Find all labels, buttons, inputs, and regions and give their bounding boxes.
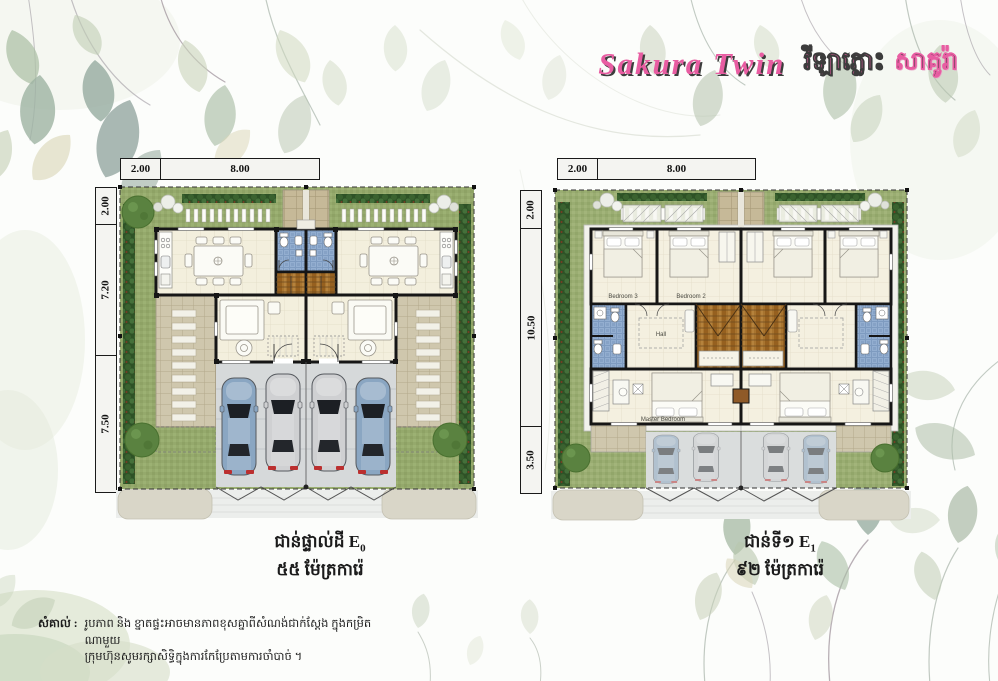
road-corner-stone: [819, 490, 909, 520]
hall-label: Hall: [656, 332, 666, 338]
entry-step: [297, 220, 315, 229]
dimension-cell: 2.00: [558, 159, 598, 179]
tree: [122, 196, 154, 228]
dimension-cell: 2.00: [121, 159, 161, 179]
road-corner-stone: [382, 489, 476, 519]
note-text: រូបភាព និង ខ្នាតផ្ទះអាចមានភាពខុសគ្នាពីសំ…: [85, 616, 385, 666]
first-floor-plan: Bedroom 3 Bedroom 2 Hall Master Bedroom: [551, 184, 911, 522]
first-side-dimension-bar: 2.00 10.50 3.50: [520, 190, 542, 494]
dimension-cell: 8.00: [161, 159, 319, 179]
ground-floor-caption: ជាន់ផ្ទាល់ដី E0 ៥៥ ម៉ែត្រការ៉េ: [205, 529, 435, 582]
master-bedroom-label: Master Bedroom: [641, 417, 685, 423]
brand-khmer-dark: សាគូរ៉ា: [895, 46, 958, 82]
dimension-cell: 7.50: [96, 356, 116, 492]
first-floor-caption: ជាន់ទី១ E1 ៩២ ម៉ែត្រការ៉េ: [665, 529, 895, 582]
note-line2: ក្រុមហ៊ុនសូមរក្សាសិទ្ធិក្នុងការកែប្រែតាម…: [85, 651, 303, 663]
ground-floor-area: ៥៥ ម៉ែត្រការ៉េ: [205, 557, 435, 583]
tree: [433, 423, 467, 457]
tree: [125, 423, 159, 457]
disclaimer-note: សំគាល់ : រូបភាព និង ខ្នាតផ្ទះអាចមានភាពខុ…: [38, 616, 385, 666]
brochure-page: Sakura Twin វីឡាភ្លោះ សាគូរ៉ា 2.00 8.00 …: [0, 0, 998, 681]
center-walkway: [738, 192, 744, 227]
note-label: សំគាល់ :: [38, 616, 78, 666]
tree: [562, 444, 590, 472]
ground-floor-title: ជាន់ផ្ទាល់ដី E0: [205, 529, 435, 557]
dimension-cell: 10.50: [521, 229, 541, 427]
dimension-cell: 3.50: [521, 427, 541, 493]
tree: [871, 444, 899, 472]
ground-floor-plan: [116, 184, 478, 522]
road-corner-stone: [553, 490, 643, 520]
dimension-cell: 8.00: [598, 159, 755, 179]
dimension-cell: 7.20: [96, 225, 116, 356]
note-line1: រូបភាព និង ខ្នាតផ្ទះអាចមានភាពខុសគ្នាពីសំ…: [85, 618, 372, 647]
dimension-cell: 2.00: [521, 191, 541, 229]
road-corner-stone: [118, 489, 212, 519]
brand-khmer-text: វីឡាភ្លោះ សាគូរ៉ា: [803, 46, 958, 82]
first-top-dimension-bar: 2.00 8.00: [557, 158, 756, 180]
first-floor-area: ៩២ ម៉ែត្រការ៉េ: [665, 557, 895, 583]
brand-logo: Sakura Twin វីឡាភ្លោះ សាគូរ៉ា: [598, 46, 958, 82]
brand-khmer-pink: វីឡាភ្លោះ: [803, 46, 884, 82]
dimension-cell: 2.00: [96, 188, 116, 225]
bedroom2-label: Bedroom 2: [676, 294, 706, 300]
leaves-bottom-center: [406, 592, 541, 668]
stair-gap: [733, 389, 749, 403]
bedroom3-label: Bedroom 3: [608, 294, 638, 300]
brand-script-text: Sakura Twin: [598, 46, 785, 82]
ground-top-dimension-bar: 2.00 8.00: [120, 158, 320, 180]
ground-side-dimension-bar: 2.00 7.20 7.50: [95, 187, 117, 493]
leaves-top-center: [380, 17, 576, 116]
hedge-left: [558, 202, 570, 486]
first-floor-title: ជាន់ទី១ E1: [665, 529, 895, 557]
